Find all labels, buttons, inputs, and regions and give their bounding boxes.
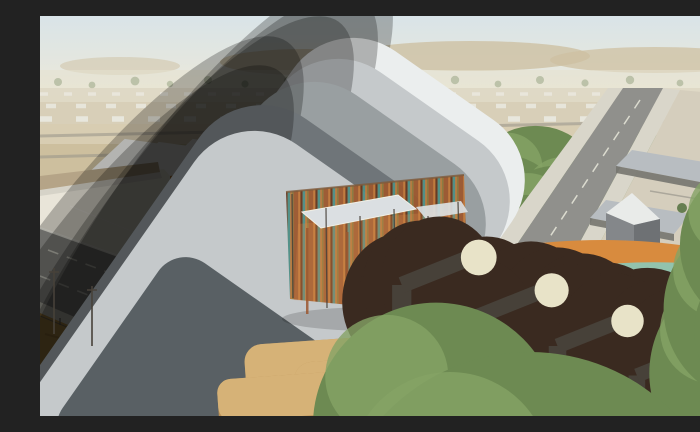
scene: Aerial 3D rendering of a planned townshi… (40, 16, 700, 416)
township-render: Aerial 3D rendering of a planned townshi… (40, 16, 700, 416)
